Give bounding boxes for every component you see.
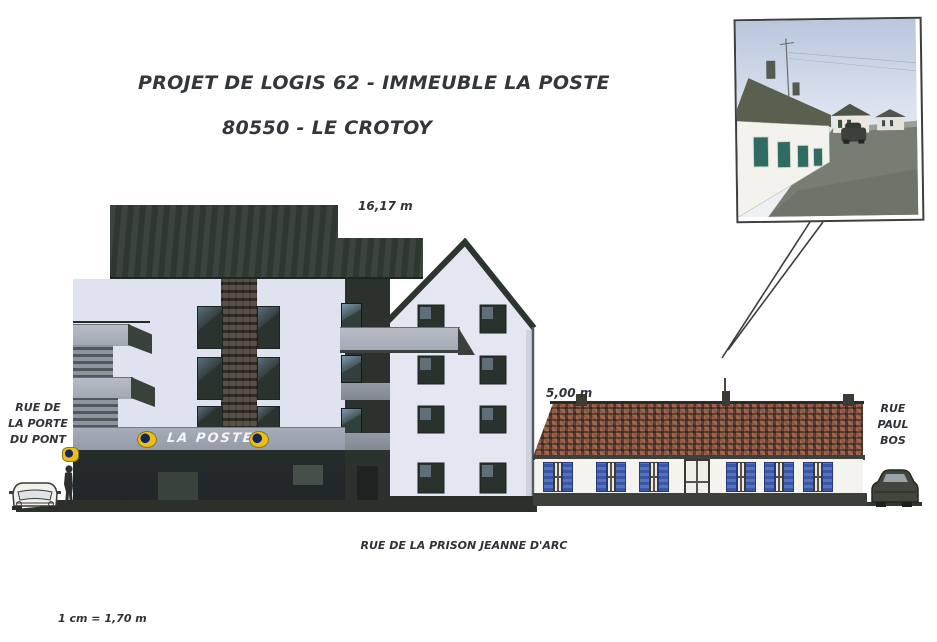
window <box>257 406 280 429</box>
balcony-parapet <box>73 398 118 428</box>
sidewalk <box>55 500 537 512</box>
laposte-corner-logo-icon <box>62 447 79 462</box>
pedestrian-figure <box>61 464 76 508</box>
street-left-line2: LA PORTE <box>6 416 70 432</box>
window <box>341 355 362 383</box>
balcony-parapet <box>341 433 390 450</box>
gable-wall <box>390 242 533 505</box>
street-label-right: RUE PAUL BOS <box>865 401 921 449</box>
photo-chimney <box>766 61 775 79</box>
chimney-flue <box>724 378 726 392</box>
street-right-line1: RUE <box>865 401 921 417</box>
window <box>257 357 280 400</box>
shuttered-window <box>596 462 626 492</box>
shuttered-window <box>639 462 669 492</box>
balcony-slab <box>73 324 130 346</box>
parked-car-left <box>8 476 62 512</box>
window <box>197 406 223 429</box>
brick-stair-column <box>221 279 257 429</box>
page-title: PROJET DE LOGIS 62 - IMMEUBLE LA POSTE <box>138 72 610 94</box>
laposte-logo-icon <box>137 431 157 448</box>
shopfront-window <box>293 465 323 485</box>
street-left-line1: RUE DE <box>6 400 70 416</box>
chimney <box>843 394 854 406</box>
dimension-house-height: 5,00 m <box>546 386 592 400</box>
street-photo-inset <box>734 17 925 224</box>
balcony-parapet <box>73 345 113 378</box>
dimension-building-height: 16,17 m <box>358 199 413 213</box>
street-right-line3: BOS <box>865 433 921 449</box>
gable-wing <box>385 238 537 508</box>
window <box>341 303 362 330</box>
house-roof <box>533 404 863 457</box>
photo-shutter <box>753 137 768 167</box>
shuttered-window <box>764 462 794 492</box>
balcony-slab <box>73 377 133 399</box>
street-label-left: RUE DE LA PORTE DU PONT <box>6 400 70 448</box>
page-subtitle: 80550 - LE CROTOY <box>222 117 432 139</box>
house-base <box>533 493 867 506</box>
parked-car-right <box>868 466 920 510</box>
window <box>197 306 223 349</box>
scale-note: 1 cm = 1,70 m <box>58 612 147 625</box>
slab-underline <box>340 350 460 353</box>
balcony-parapet <box>341 383 390 400</box>
house-ridge-line <box>550 401 864 404</box>
street-right-line2: PAUL <box>865 417 921 433</box>
balcony-top-line <box>73 321 150 323</box>
street-left-line3: DU PONT <box>6 432 70 448</box>
shuttered-window <box>543 462 573 492</box>
chimney <box>722 391 730 406</box>
street-photo <box>736 19 919 217</box>
main-building-roof <box>110 205 338 278</box>
street-label-bottom: RUE DE LA PRISON JEANNE D'ARC <box>314 538 614 554</box>
laposte-logo-icon <box>249 431 269 448</box>
window <box>257 306 280 349</box>
shuttered-window <box>803 462 833 492</box>
window <box>197 357 223 400</box>
elevation-drawing-sheet: PROJET DE LOGIS 62 - IMMEUBLE LA POSTE 8… <box>0 0 937 642</box>
laposte-sign-text: LA POSTE <box>166 431 254 446</box>
photo-leader-lines <box>700 216 840 366</box>
shuttered-window <box>726 462 756 492</box>
